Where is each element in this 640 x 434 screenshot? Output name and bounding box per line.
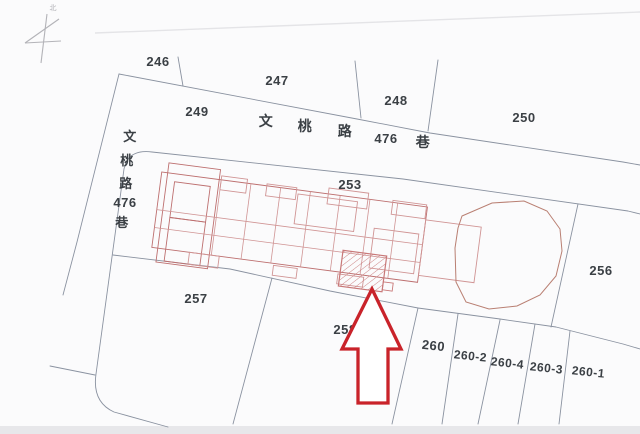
boundary-258-260 <box>392 308 418 424</box>
boundary-248-250 <box>428 60 438 131</box>
parcel-label-257: 257 <box>184 291 207 306</box>
building-outline <box>418 220 481 283</box>
boundary-260-260-2 <box>442 314 458 424</box>
parcel-label-260-4: 260-4 <box>490 354 524 371</box>
boundary-257-258 <box>233 278 272 424</box>
north-label: 北 <box>50 4 57 12</box>
cadastral-map: 246247248249250253256257258260260-2260-4… <box>0 0 640 434</box>
scan-edge-band <box>0 426 640 434</box>
road-label-v-2: 桃 <box>120 153 134 168</box>
north-symbol-stroke <box>25 19 59 43</box>
road-label-v-4: 476 <box>113 195 136 210</box>
north-symbol-stroke <box>41 14 47 63</box>
building-tab <box>382 282 393 291</box>
cadastral-map-page: 246247248249250253256257258260260-2260-4… <box>0 0 640 434</box>
boundary-260-2-260-4 <box>478 320 500 424</box>
building-rounded-structure <box>455 201 562 309</box>
parcel-label-260-2: 260-2 <box>453 347 487 364</box>
boundary-north-block-south-edge <box>119 74 640 165</box>
road-label-h-4: 476 <box>374 131 397 146</box>
parcel-label-260-3: 260-3 <box>529 359 563 376</box>
boundary-west-stub <box>50 366 95 375</box>
parcel-label-246: 246 <box>146 54 169 69</box>
road-label-h-1: 文 <box>259 113 274 129</box>
road-label-h-3: 路 <box>338 123 353 139</box>
road-label-h-2: 桃 <box>298 118 313 134</box>
parcel-label-260: 260 <box>421 337 446 354</box>
parcel-label-260-1: 260-1 <box>571 363 605 380</box>
boundary-260-4-260-3 <box>518 324 535 424</box>
road-label-v-1: 文 <box>123 129 137 144</box>
boundary-246-247 <box>178 57 183 86</box>
parcel-label-253: 253 <box>338 177 361 192</box>
red-pointer-arrow <box>342 289 401 403</box>
parcel-label-247: 247 <box>265 73 288 88</box>
pointer-arrow <box>342 289 401 403</box>
parcel-label-250: 250 <box>512 110 535 125</box>
boundary-260-3-260-1 <box>559 331 570 424</box>
building-outline <box>220 176 248 193</box>
north-arrow-symbol: 北 <box>25 4 61 63</box>
parcel-label-256: 256 <box>589 263 612 278</box>
building-outline <box>164 217 205 265</box>
building-outline <box>272 265 297 278</box>
building-outline <box>294 194 357 232</box>
road-label-v-5: 巷 <box>114 215 129 230</box>
scan-fold-line <box>95 12 640 33</box>
boundary-west-road-edge <box>63 74 119 295</box>
road-label-v-3: 路 <box>119 176 133 191</box>
boundary-247-248 <box>355 61 361 118</box>
road-label-h-5: 巷 <box>415 134 431 150</box>
parcel-label-249: 249 <box>185 104 208 119</box>
building-partition-line <box>157 210 423 245</box>
subject-building-hatched <box>338 250 386 291</box>
parcel-label-248: 248 <box>384 93 407 108</box>
